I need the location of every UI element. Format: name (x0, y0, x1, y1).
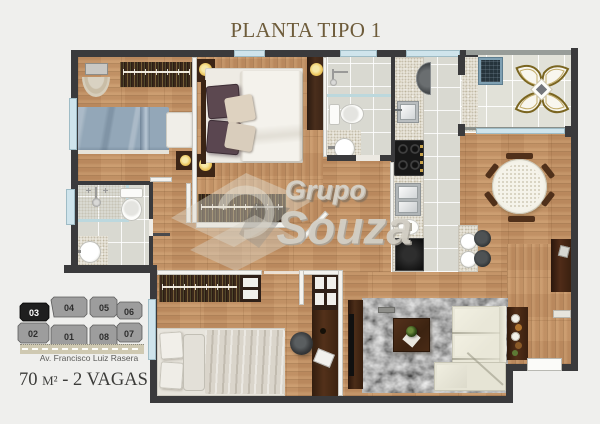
svg-text:04: 04 (64, 303, 74, 313)
svg-text:01: 01 (64, 332, 74, 342)
svg-text:Souza: Souza (277, 202, 412, 254)
svg-text:03: 03 (29, 308, 39, 318)
svg-text:06: 06 (124, 307, 134, 317)
svg-text:Grupo: Grupo (285, 175, 366, 205)
svg-text:08: 08 (99, 332, 109, 342)
svg-text:02: 02 (28, 329, 38, 339)
svg-text:05: 05 (99, 303, 109, 313)
svg-text:07: 07 (124, 329, 134, 339)
